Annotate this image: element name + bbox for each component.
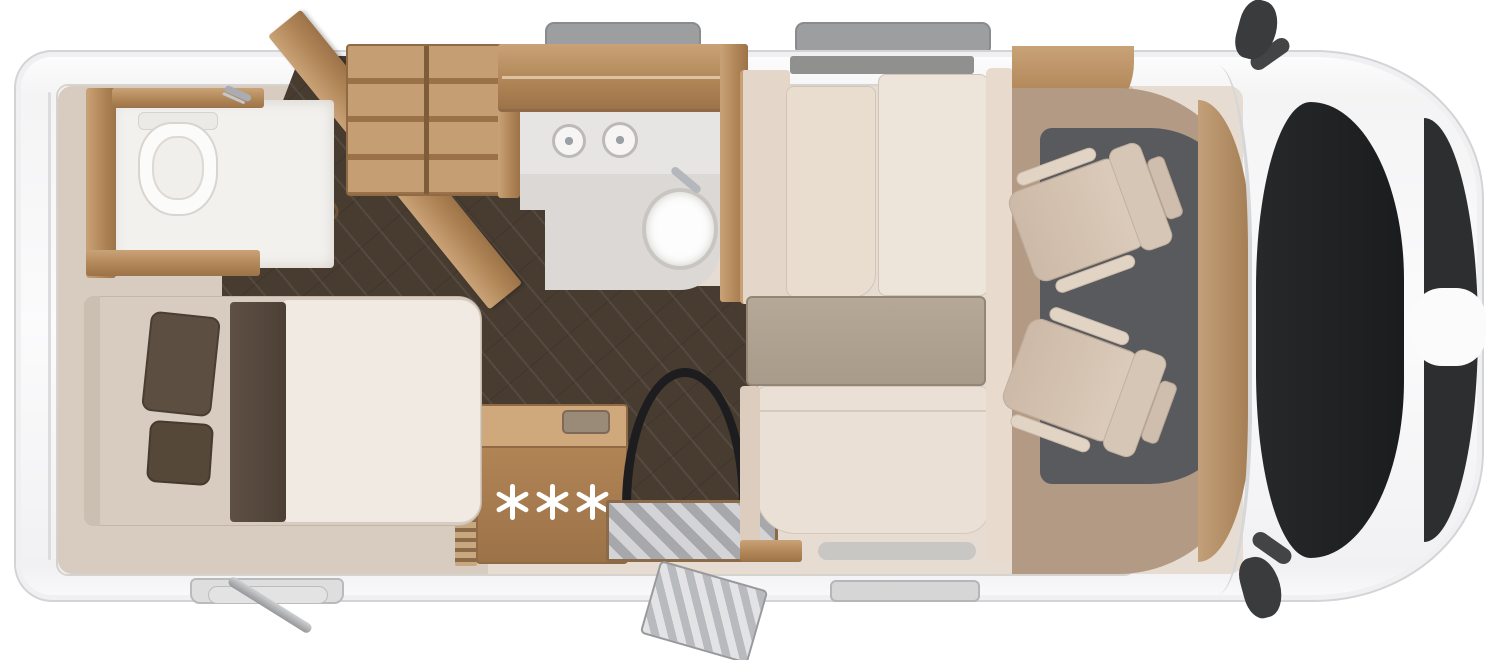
rear-wall-line xyxy=(48,92,51,560)
dinette-rear-bench-cushion-2 xyxy=(878,74,988,296)
shower-control-dial-1 xyxy=(552,124,586,158)
bed-mattress-light xyxy=(282,300,480,522)
kitchen-sink xyxy=(562,410,610,434)
bed-pillow-2 xyxy=(146,420,214,486)
dinette-wood-cap xyxy=(740,540,802,562)
dinette-sideboard xyxy=(740,70,790,304)
washbasin xyxy=(642,188,718,270)
washroom-overhead-shelf-line xyxy=(502,76,744,79)
dinette-bench-side-panel xyxy=(740,386,760,556)
bed-pillow-1 xyxy=(141,311,221,418)
shower-control-dial-2 xyxy=(602,122,638,158)
stove-burner-2-icon xyxy=(532,482,572,522)
motorhome-floorplan xyxy=(0,0,1499,660)
dinette-rear-bench-cushion-1 xyxy=(786,86,876,298)
cab-partition xyxy=(986,68,1014,562)
dinette-front-bench-seam xyxy=(760,410,986,412)
toilet-seat xyxy=(152,136,204,200)
toilet-room-wall-bottom xyxy=(86,250,260,276)
bed-headboard xyxy=(84,296,100,526)
bed-runner xyxy=(230,302,286,522)
dinette-table xyxy=(746,296,986,386)
stove-burner-1-icon xyxy=(492,482,532,522)
hood-white-split xyxy=(1412,288,1486,366)
dinette-front-bench xyxy=(756,386,990,534)
dinette-window-tab xyxy=(830,580,980,602)
rear-wardrobe-divider xyxy=(424,46,429,194)
dinette-window-band xyxy=(790,56,974,74)
windshield xyxy=(1256,102,1404,558)
dinette-window-recess xyxy=(818,542,976,560)
